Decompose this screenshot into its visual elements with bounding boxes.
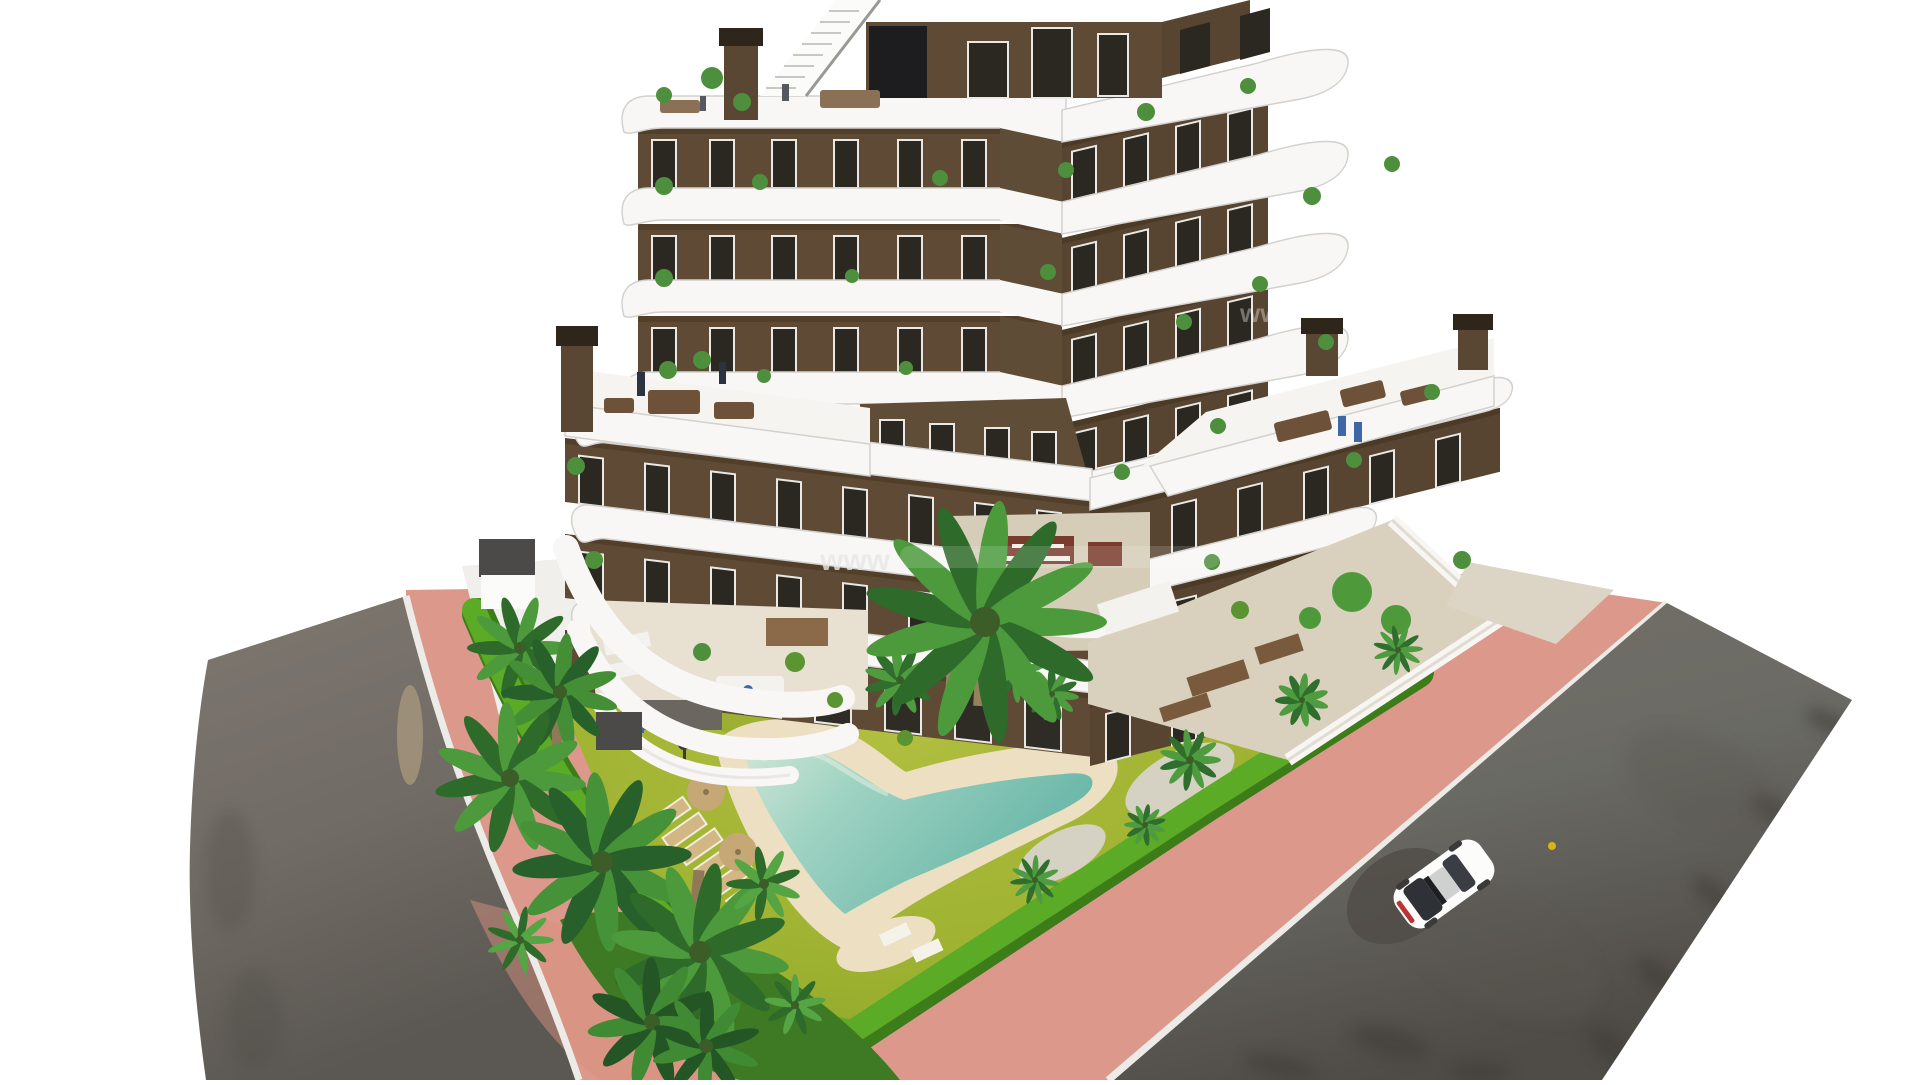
svg-text:www: www: [1239, 298, 1301, 328]
svg-text:www: www: [819, 544, 891, 577]
